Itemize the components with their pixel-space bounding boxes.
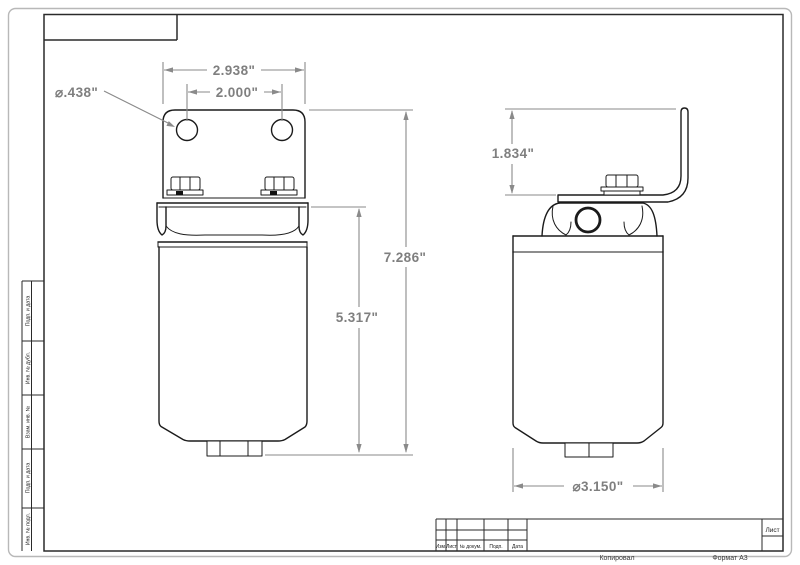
- front-bolt-right: [261, 177, 297, 195]
- title-col-docnum: № докум.: [460, 544, 482, 550]
- title-col-podp: Подп.: [489, 544, 502, 550]
- sidebar-label: Подп. и дата: [26, 296, 32, 327]
- page-border: [9, 9, 792, 557]
- footer-copied-label: Копировал: [599, 555, 634, 562]
- sidebar-label: Подп. и дата: [26, 463, 32, 494]
- side-bolt: [601, 175, 643, 195]
- dim-text: 1.834": [492, 146, 535, 161]
- dim-text: 2.938": [213, 63, 256, 78]
- dim-text: 7.286": [384, 250, 427, 265]
- front-drain-fitting: [207, 441, 262, 456]
- drawing-sheet: Подп. и дата Инв. № дубл. Взам. инв. № П…: [0, 0, 800, 565]
- title-col-izm: Изм.: [436, 544, 447, 550]
- sidebar-label: Инв. № дубл.: [26, 352, 32, 384]
- dim-text: 2.000": [216, 85, 259, 100]
- title-col-data: Дата: [512, 544, 523, 550]
- sheet-number-label: Лист: [765, 527, 779, 534]
- dim-text: ⌀3.150": [572, 479, 623, 494]
- footer-format-label: Формат А3: [712, 555, 747, 562]
- title-col-list: Лист: [446, 544, 458, 550]
- sidebar-label: Инв. № подл.: [26, 513, 32, 545]
- bolt-mark: [270, 191, 277, 195]
- dim-text: 5.317": [336, 310, 379, 325]
- bolt-mark: [176, 191, 183, 195]
- side-drain-fitting: [565, 443, 613, 457]
- front-bolt-left: [167, 177, 203, 195]
- drawing-canvas: Подп. и дата Инв. № дубл. Взам. инв. № П…: [0, 0, 800, 565]
- sidebar-label: Взам. инв. №: [26, 405, 32, 438]
- dim-text: ⌀.438": [55, 85, 98, 100]
